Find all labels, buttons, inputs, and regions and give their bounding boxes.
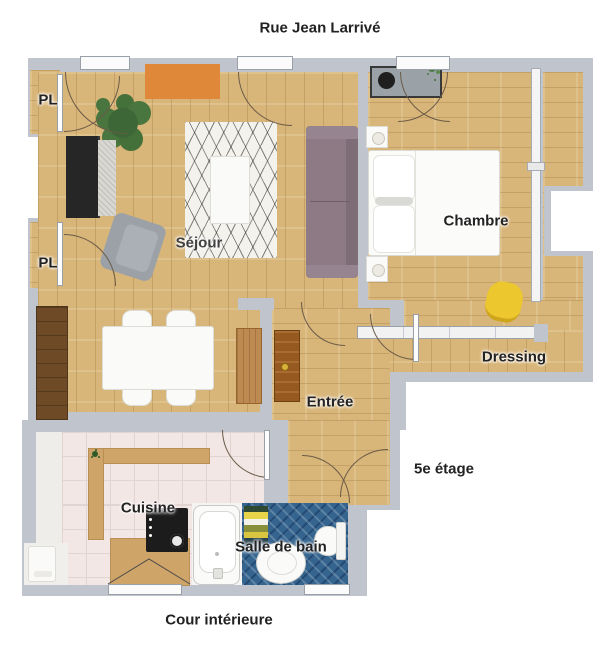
sofa-backrest xyxy=(346,132,358,272)
sofa-armrest-top xyxy=(306,126,358,139)
kitchen-label: Cuisine xyxy=(121,500,175,517)
window-living-1 xyxy=(80,56,130,70)
fridge-handle xyxy=(34,571,52,577)
double-bed xyxy=(368,150,500,256)
sofa xyxy=(306,126,358,278)
sofa-armrest-bottom xyxy=(306,265,358,278)
sliding-partition xyxy=(531,68,541,302)
bathtub xyxy=(193,505,240,585)
window-living-2 xyxy=(237,56,293,70)
bed-pillow-bottom xyxy=(373,205,415,253)
bathtub-drain xyxy=(215,552,219,556)
street-label: Rue Jean Larrivé xyxy=(260,20,381,37)
closet-upper-label: PL xyxy=(38,92,57,109)
dining-table xyxy=(102,326,214,390)
fridge xyxy=(28,546,56,582)
sideboard xyxy=(36,306,68,420)
kitchen-window-opening-symbol xyxy=(106,556,194,586)
bathtub-faucet xyxy=(213,568,223,579)
entry-label: Entrée xyxy=(307,394,354,411)
cooktop-knobs xyxy=(149,518,152,521)
front-door-knob xyxy=(281,363,289,371)
orange-rug xyxy=(145,64,220,99)
floor-level-label: 5e étage xyxy=(414,461,474,478)
window-bathroom xyxy=(304,584,350,595)
toilet-tank xyxy=(336,522,346,560)
bed-duvet-fold xyxy=(415,151,416,255)
window-bedroom xyxy=(396,56,450,70)
coffee-table xyxy=(210,156,250,224)
living-entry-wall-stub xyxy=(238,298,274,310)
tv-unit xyxy=(66,136,100,218)
kitchen-counter-top xyxy=(88,448,210,464)
partition-connector xyxy=(527,162,545,171)
bathtub-inner xyxy=(199,511,236,573)
nightstand-bottom-lamp xyxy=(372,264,385,277)
window-kitchen xyxy=(108,584,182,595)
notch-right-wall-left xyxy=(544,186,551,256)
armchair-seat xyxy=(114,223,159,273)
floor-plan: Rue Jean Larrivé PL PL Séjour Chambre Dr… xyxy=(0,0,606,650)
entry-bedroom-door-leaf xyxy=(413,314,419,362)
bed-duvet-center xyxy=(416,201,499,202)
dressing-closet-endcap xyxy=(534,324,548,342)
closet-upper-door xyxy=(57,74,63,132)
kitchen-counter-left xyxy=(88,448,104,540)
burner-2 xyxy=(170,534,184,548)
nightstand-top-lamp xyxy=(372,132,385,145)
nightstand-top xyxy=(366,126,388,148)
entry-cabinet xyxy=(236,328,262,404)
bedroom-label: Chambre xyxy=(443,213,508,230)
kitchen-door-leaf xyxy=(264,430,270,480)
sofa-cushion-line xyxy=(310,201,350,202)
tv-unit-rug xyxy=(98,140,116,216)
living-room-label: Séjour xyxy=(176,235,223,252)
closet-lower-door xyxy=(57,222,63,286)
bed-pillow-top xyxy=(373,155,415,201)
dressing-label: Dressing xyxy=(482,349,546,366)
bathroom-label: Salle de bain xyxy=(235,539,327,556)
facade-notch-right xyxy=(551,191,593,251)
desk-chair xyxy=(378,72,395,89)
bed-bolster xyxy=(375,197,413,205)
courtyard-label: Cour intérieure xyxy=(165,612,273,629)
closet-lower-label: PL xyxy=(38,255,57,272)
counter-plant-icon xyxy=(92,451,98,457)
notch-right-wall-bottom xyxy=(551,251,593,256)
nightstand-bottom xyxy=(366,256,388,282)
